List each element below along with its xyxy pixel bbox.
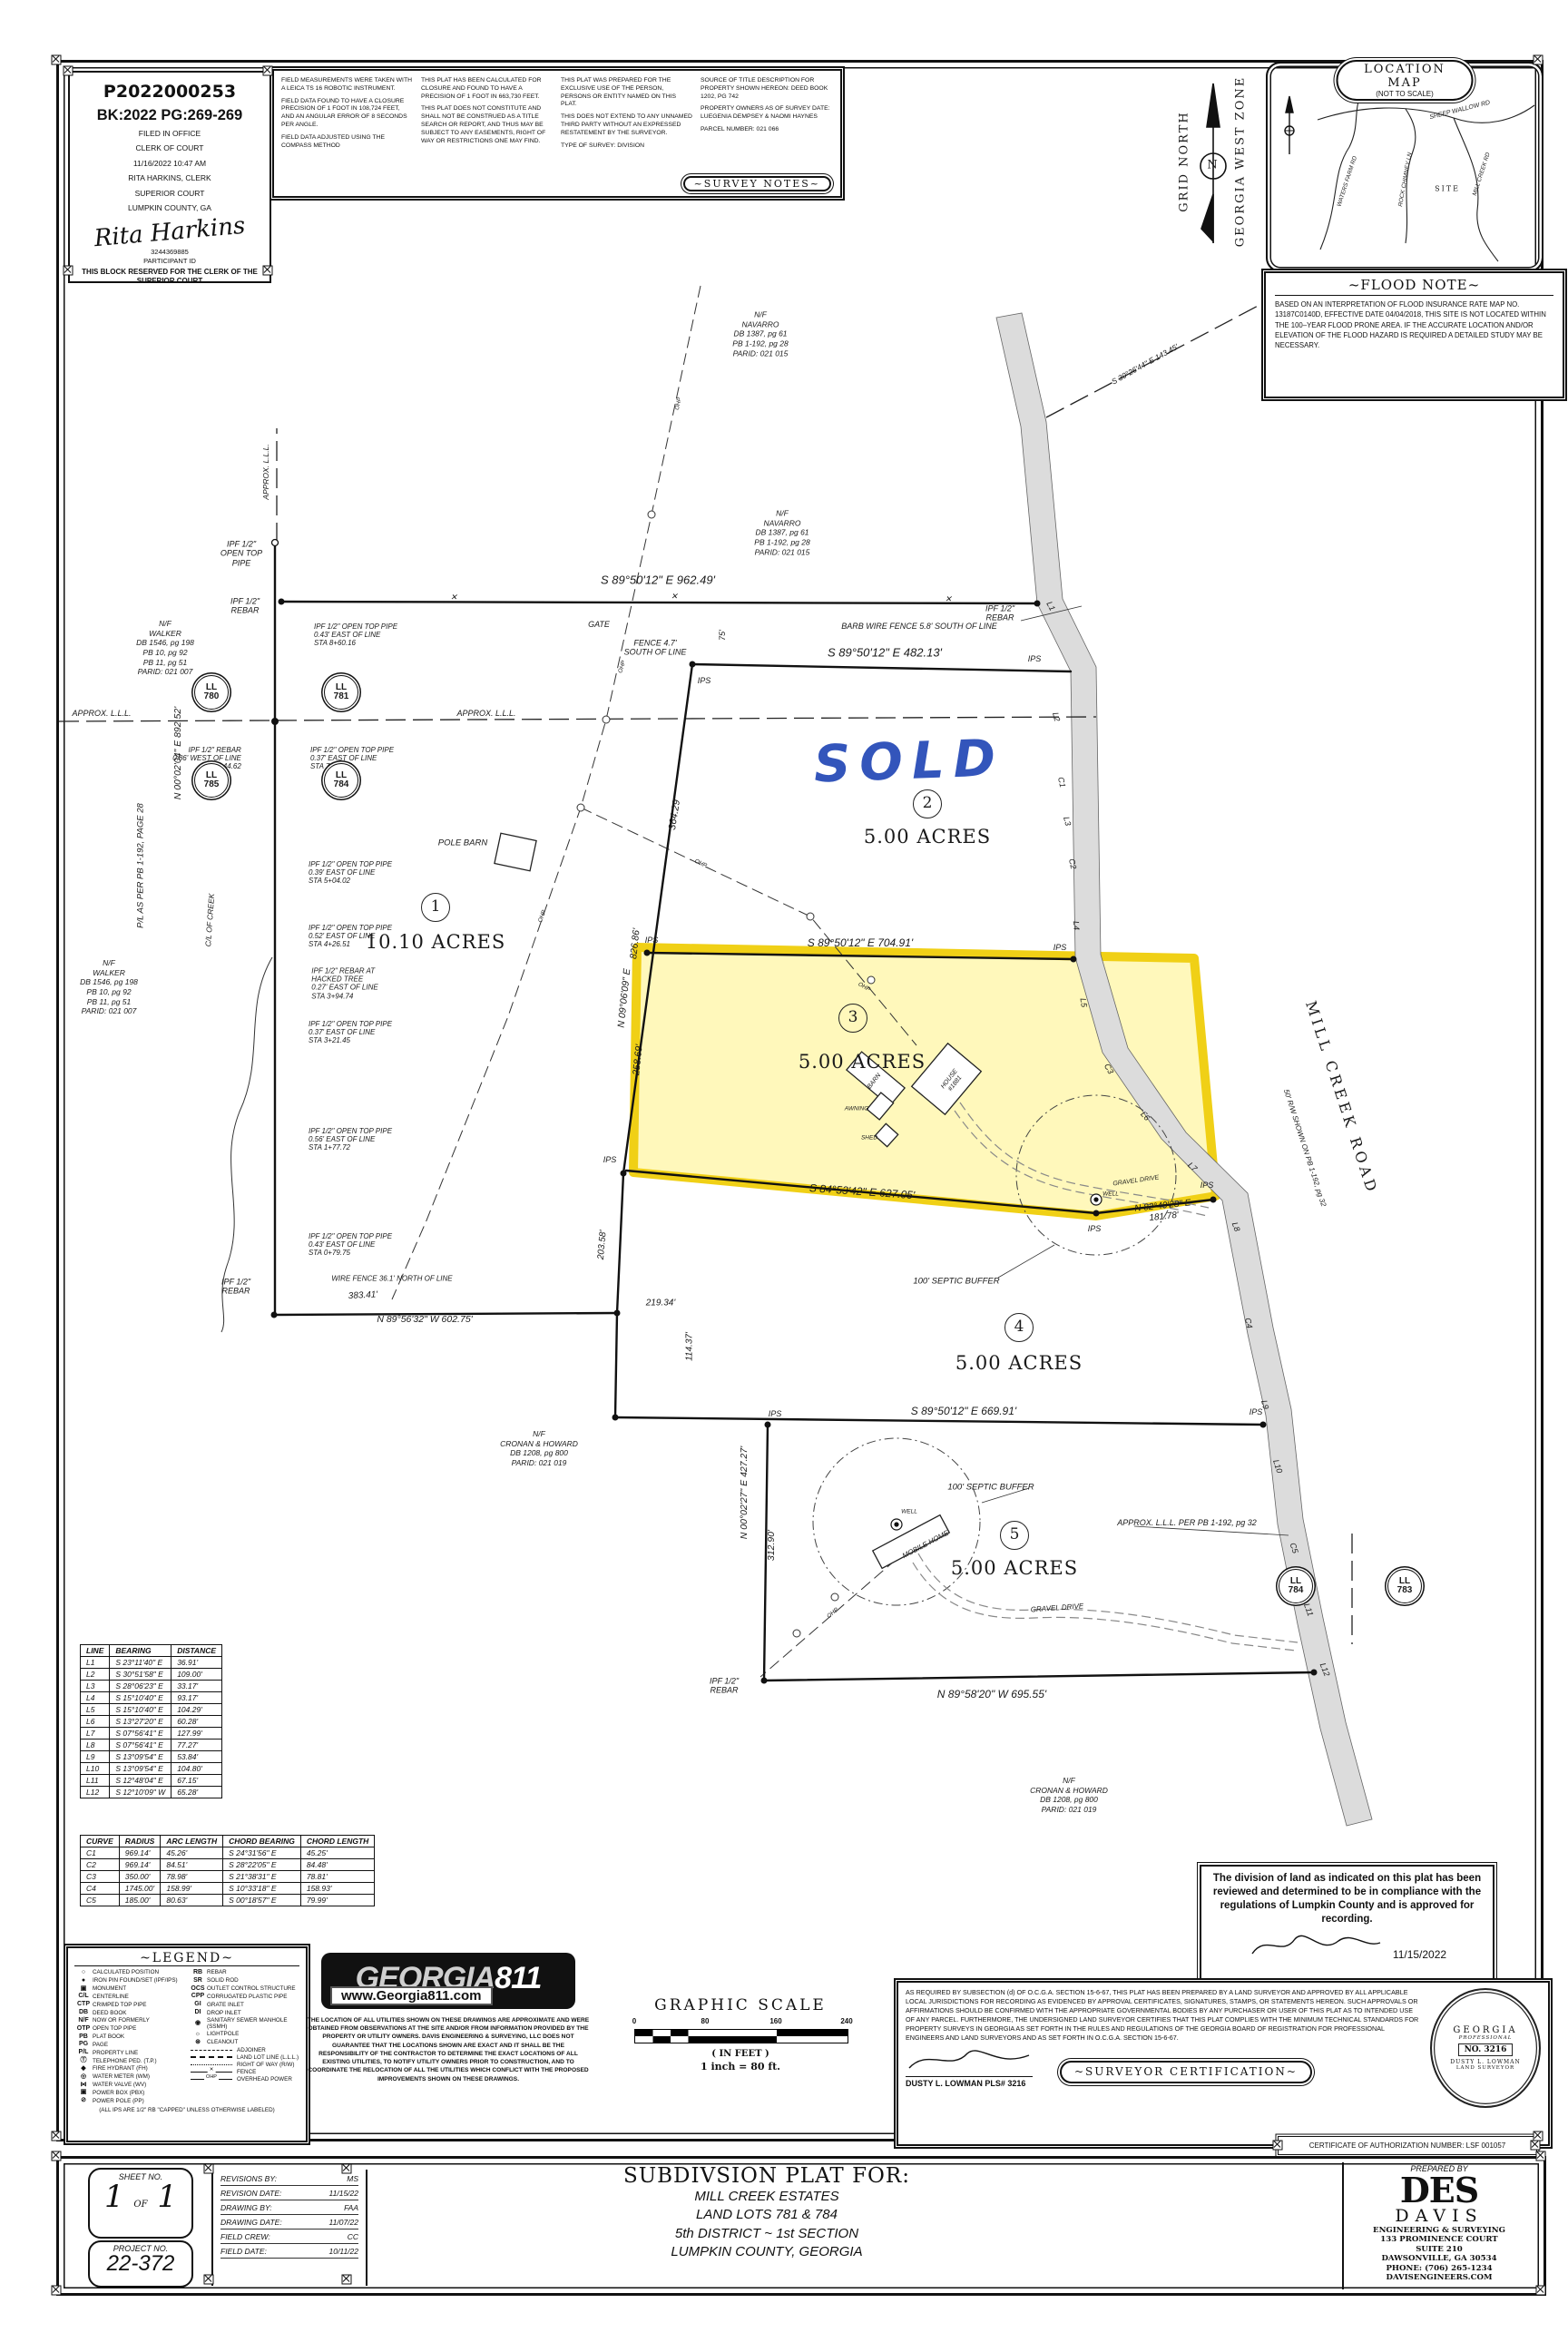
parcel-number: 4 (1004, 1313, 1034, 1342)
map-label: N/FCRONAN & HOWARDDB 1208, pg 800PARID: … (500, 1429, 578, 1468)
legend-right-column: RBREBARSRSOLID RODOCSOUTLET CONTROL STRU… (189, 1968, 299, 2105)
scale-units: ( IN FEET ) (599, 2049, 882, 2059)
map-label: IPS (1088, 1224, 1102, 1233)
project-number: 22-372 (90, 2253, 191, 2275)
georgia811-block: GEORGIA811 www.Georgia811.com THE LOCATI… (307, 1953, 590, 2131)
map-label: L2 (1051, 711, 1063, 722)
title-block: SHEET NO. 1 OF 1 PROJECT NO. 22-372 REVI… (56, 2156, 1546, 2296)
map-label: IPF 1/2"REBAR (710, 1677, 739, 1696)
map-label: N (1207, 160, 1219, 173)
surveyor-certification-title: ~SURVEYOR CERTIFICATION~ (1060, 2061, 1312, 2083)
sheet-number-box: SHEET NO. 1 OF 1 (88, 2168, 193, 2239)
map-label: N 82°40'28" E181.78' (1134, 1198, 1192, 1224)
parcel-number: 2 (913, 789, 942, 818)
map-label: IPF 1/2" OPEN TOP PIPE0.37' EAST OF LINE… (309, 1020, 392, 1045)
map-label: APPROX. L.L.L. (72, 709, 131, 718)
plat-title-heading: SUBDIVSION PLAT FOR: (449, 2164, 1084, 2188)
legend-item: DIDROP INLET (189, 2009, 299, 2016)
map-label: C/L OF CREEK (204, 893, 217, 946)
map-label: IPF 1/2" OPEN TOP PIPE0.43' EAST OF LINE… (314, 622, 397, 648)
map-label: N/FNAVARRODB 1387, pg 61PB 1-192, pg 28P… (754, 508, 809, 556)
map-label: IPS (1053, 943, 1067, 952)
map-label: 826.86' (628, 927, 642, 959)
map-label: WELL (1102, 1191, 1119, 1197)
firm-block: PREPARED BY DES DAVIS ENGINEERING & SURV… (1342, 2162, 1534, 2289)
revisions-table: REVISIONS BY:MSREVISION DATE:11/15/22DRA… (211, 2170, 367, 2286)
curve-table: CURVERADIUSARC LENGTHCHORD BEARINGCHORD … (80, 1835, 375, 1906)
map-label: S 89°50'12" E 704.91' (808, 937, 913, 950)
land-lot-marker: LL784 (324, 763, 358, 798)
legend-item: ◆FIRE HYDRANT (FH) (74, 2065, 185, 2073)
map-label: IPF 1/2"OPEN TOPPIPE (220, 539, 262, 567)
map-label: OHP (693, 858, 708, 870)
surveyor-signature (906, 2046, 1033, 2073)
map-label: BARB WIRE FENCE 5.8' SOUTH OF LINE (841, 622, 997, 631)
table-header: RADIUS (119, 1836, 161, 1847)
sheet-current: 1 (104, 2179, 124, 2215)
map-label: 312.90' (766, 1530, 777, 1561)
map-label: 258.69' (631, 1044, 645, 1075)
surveyor-certification-block: AS REQUIRED BY SUBSECTION (d) OF O.C.G.A… (894, 1978, 1553, 2149)
legend-item: SRSOLID ROD (189, 1977, 299, 1984)
map-label: L6 (1139, 1110, 1151, 1122)
map-label: GRID NORTH (1179, 111, 1192, 211)
map-label: GRAVEL DRIVE (1112, 1174, 1160, 1188)
survey-notes-title: ~SURVEY NOTES~ (683, 176, 831, 191)
table-row: L4S 15°10'40" E93.17' (81, 1692, 222, 1704)
map-label: L9 (1259, 1399, 1271, 1410)
participant-label: PARTICIPANT ID (70, 257, 269, 266)
survey-notes-col4: SOURCE OF TITLE DESCRIPTION FOR PROPERTY… (701, 77, 833, 190)
map-label: 50' R/W SHOWN ON PB 1-192, pg 32 (1282, 1088, 1328, 1208)
map-label: 75' (718, 630, 727, 641)
map-label: S 89°50'12" E 669.91' (911, 1406, 1016, 1418)
graphic-scale: GRAPHIC SCALE 080160240 ( IN FEET ) 1 in… (599, 1996, 882, 2105)
survey-notes-col2: THIS PLAT HAS BEEN CALCULATED FOR CLOSUR… (421, 77, 554, 190)
legend-item: PBPLAT BOOK (74, 2033, 185, 2041)
table-row: L12S 12°10'09" W65.28' (81, 1787, 222, 1798)
seal-number: NO. 3216 (1458, 2043, 1514, 2056)
map-label: SITE (1435, 184, 1460, 192)
table-header: LINE (81, 1645, 110, 1657)
map-label: ROCK CHIMNEY LN (1397, 152, 1414, 208)
approval-signature (1248, 1930, 1384, 1961)
map-label: L12 (1318, 1661, 1331, 1678)
county-approval-block: The division of land as indicated on thi… (1200, 1865, 1494, 1988)
legend-item: ☼LIGHTPOLE (189, 2031, 299, 2038)
approval-date: 11/15/2022 (1393, 1948, 1446, 1961)
map-label: MILL CREEK RD (1472, 152, 1492, 197)
map-label: OHP (617, 660, 627, 674)
plat-title-lines: MILL CREEK ESTATESLAND LOTS 781 & 7845th… (449, 2188, 1084, 2261)
map-label: WELL (901, 1508, 917, 1514)
parcel-number: 3 (838, 1004, 867, 1033)
table-header: ARC LENGTH (161, 1836, 223, 1847)
sheet-of: OF (133, 2200, 147, 2210)
map-label: ✕ (671, 592, 678, 601)
flood-note-title: ~FLOOD NOTE~ (1275, 277, 1553, 296)
map-label: N/FCRONAN & HOWARDDB 1208, pg 800PARID: … (1030, 1776, 1108, 1815)
table-row: C5185.00'80.63'S 00°18'57" E79.99' (81, 1895, 375, 1906)
map-label: FENCE 4.7'SOUTH OF LINE (624, 639, 687, 658)
utility-disclaimer: THE LOCATION OF ALL UTILITIES SHOWN ON T… (307, 2016, 590, 2083)
map-label: L8 (1230, 1221, 1241, 1233)
map-label: POLE BARN (438, 839, 487, 849)
map-label: C2 (1067, 857, 1079, 869)
table-row: C41745.00'158.99'S 10°33'18" E158.93' (81, 1883, 375, 1895)
firm-logo: DES (1344, 2173, 1534, 2208)
map-label: L5 (1078, 997, 1089, 1007)
surveyor-name: DUSTY L. LOWMAN PLS# 3216 (906, 2076, 1033, 2089)
georgia811-url: www.Georgia811.com (330, 1986, 493, 2005)
map-label: IPF 1/2" OPEN TOP PIPE0.52' EAST OF LINE… (309, 924, 392, 949)
seal-level: PROFESSIONAL (1459, 2035, 1513, 2041)
table-row: L5S 15°10'40" E104.29' (81, 1704, 222, 1716)
legend-item: ▣MONUMENT (74, 1985, 185, 1993)
legend-item: ○CALCULATED POSITION (74, 1969, 185, 1976)
certificate-of-authorization: CERTIFICATE OF AUTHORIZATION NUMBER: LSF… (1278, 2136, 1537, 2155)
legend-line-item: OHPOVERHEAD POWER (189, 2076, 299, 2082)
map-label: IPF 1/2"REBAR (230, 597, 260, 616)
legend-item: ⊛CLEANOUT (189, 2039, 299, 2046)
map-label: IPF 1/2"REBAR (985, 604, 1014, 623)
map-label: SHEEP WALLOW RD (1429, 100, 1491, 122)
table-row: C2969.14'84.51'S 28°22'05" E84.48' (81, 1859, 375, 1871)
map-label: N 00°02'27" E 427.27' (739, 1446, 750, 1539)
map-label: IPS (645, 936, 659, 945)
map-label: C4 (1243, 1317, 1255, 1328)
map-label: C3 (1102, 1062, 1116, 1075)
table-row: L7S 07°56'41" E127.99' (81, 1728, 222, 1739)
scale-tick: 0 (632, 2017, 636, 2025)
map-label: IPS (603, 1155, 617, 1164)
table-row: C1969.14'45.26'S 24°31'56" E45.25' (81, 1847, 375, 1859)
legend-item: CTPCRIMPED TOP PIPE (74, 2001, 185, 2008)
map-label: 100' SEPTIC BUFFER (947, 1484, 1034, 1494)
revision-row: REVISIONS BY:MS (220, 2171, 358, 2186)
map-label: L11 (1302, 1602, 1316, 1617)
plat-number: P2022000253 (70, 82, 269, 102)
revision-row: REVISION DATE:11/15/22 (220, 2186, 358, 2200)
map-label: L1 (1044, 600, 1057, 612)
legend-item: ⋈WATER VALVE (WV) (74, 2082, 185, 2089)
land-lot-marker: LL783 (1387, 1569, 1422, 1603)
map-label: L10 (1271, 1458, 1284, 1474)
map-label: IPS (769, 1409, 782, 1418)
georgia811-logo: GEORGIA811 www.Georgia811.com (321, 1953, 575, 2009)
legend-item: ⊘POWER POLE (PP) (74, 2097, 185, 2104)
map-label: WATERS FARM RD (1336, 155, 1358, 208)
table-row: L3S 28°06'23" E33.17' (81, 1681, 222, 1692)
seal-name: DUSTY L. LOWMAN (1450, 2059, 1520, 2065)
seal-title: LAND SURVEYOR (1456, 2065, 1514, 2071)
land-lot-marker: LL785 (194, 763, 229, 798)
legend-item: ⓉTELEPHONE PED. (T.P.) (74, 2057, 185, 2064)
map-label: 114.37' (684, 1332, 695, 1361)
project-number-box: PROJECT NO. 22-372 (88, 2240, 193, 2288)
map-label: 364.29' (667, 797, 683, 830)
map-label: 5.00 ACRES (955, 1352, 1083, 1374)
table-row: L8S 07°56'41" E77.27' (81, 1739, 222, 1751)
map-label: APPROX. L.L.L. (456, 709, 515, 718)
legend-item: P/LPROPERTY LINE (74, 2049, 185, 2056)
map-label: N/FNAVARRODB 1387, pg 61PB 1-192, pg 28P… (732, 309, 788, 358)
revision-row: FIELD CREW:CC (220, 2229, 358, 2244)
graphic-scale-title: GRAPHIC SCALE (599, 1996, 882, 2014)
legend-item: C/LCENTERLINE (74, 1993, 185, 2000)
legend-left-column: ○CALCULATED POSITION●IRON PIN FOUND/SET … (74, 1968, 185, 2105)
map-label: OHP (826, 1607, 840, 1621)
map-label: 5.00 ACRES (951, 1557, 1078, 1579)
table-row: L2S 30°51'58" E109.00' (81, 1669, 222, 1681)
legend-note: (ALL IPS ARE 1/2" RB "CAPPED" UNLESS OTH… (74, 2107, 299, 2113)
map-label: S 30°26'44" E 143.45' (1111, 343, 1181, 387)
flood-note: ~FLOOD NOTE~ BASED ON AN INTERPRETATION … (1261, 269, 1567, 401)
revision-row: DRAWING DATE:11/07/22 (220, 2215, 358, 2229)
table-header: CURVE (81, 1836, 120, 1847)
survey-notes-col3: THIS PLAT WAS PREPARED FOR THE EXCLUSIVE… (561, 77, 693, 190)
legend-line-item: LAND LOT LINE (L.L.L.) (189, 2054, 299, 2061)
legend-item: ▣POWER BOX (PBX) (74, 2089, 185, 2096)
scale-tick: 80 (701, 2017, 710, 2025)
map-label: WIRE FENCE 36.1' NORTH OF LINE (331, 1274, 452, 1282)
map-label: HOUSE#1881 (940, 1068, 965, 1095)
legend-line-item: ADJOINER (189, 2047, 299, 2053)
map-label: S 84°53'42" E 627.05' (808, 1182, 915, 1202)
legend-item: GIGRATE INLET (189, 2001, 299, 2008)
legend-line-item: RIGHT OF WAY (R/W) (189, 2062, 299, 2068)
location-map: LOCATION MAP (NOT TO SCALE) SHEEP WALLOW… (1266, 62, 1543, 272)
map-label: AWNING (845, 1105, 869, 1112)
map-label: N 89°56'32" W 602.75' (377, 1314, 472, 1325)
map-label: N 89°58'20" W 695.55' (937, 1689, 1046, 1701)
parcel-number: 5 (1000, 1521, 1029, 1550)
reserved-note: THIS BLOCK RESERVED FOR THE CLERK OF THE… (70, 268, 269, 286)
map-label: N/FWALKERDB 1546, pg 198PB 10, pg 92PB 1… (136, 619, 194, 677)
map-label: APPROX. L.L.L. PER PB 1-192, pg 32 (1117, 1518, 1257, 1527)
scale-tick: 160 (769, 2017, 781, 2025)
revision-row: FIELD DATE:10/11/22 (220, 2244, 358, 2259)
seal-state: GEORGIA (1453, 2025, 1517, 2035)
filed-lines: FILED IN OFFICECLERK OF COURT11/16/2022 … (70, 129, 269, 214)
plat-title: SUBDIVSION PLAT FOR: MILL CREEK ESTATESL… (449, 2164, 1084, 2261)
legend-item: ◎WATER METER (WM) (74, 2073, 185, 2081)
map-label: 5.00 ACRES (864, 826, 991, 848)
map-label: GEORGIA WEST ZONE (1235, 76, 1249, 247)
surveyor-seal: GEORGIA PROFESSIONAL NO. 3216 DUSTY L. L… (1430, 1988, 1541, 2108)
map-label: IPF 1/2" OPEN TOP PIPE0.56' EAST OF LINE… (309, 1127, 392, 1152)
map-label: IPS (1028, 654, 1042, 663)
map-label: APPROX. L.L.L. (262, 444, 271, 499)
map-label: L4 (1071, 921, 1081, 931)
firm-address-lines: ENGINEERING & SURVEYING133 PROMINENCE CO… (1344, 2226, 1534, 2283)
legend-item: CPPCORRUGATED PLASTIC PIPE (189, 1993, 299, 2000)
map-label: IPF 1/2"REBAR (221, 1278, 250, 1297)
land-lot-marker: LL784 (1279, 1569, 1313, 1603)
map-label: C1 (1056, 776, 1068, 788)
table-row: L10S 13°09'54" E104.80' (81, 1763, 222, 1775)
table-header: CHORD BEARING (223, 1836, 301, 1847)
map-label: S 89°50'12" E 962.49' (601, 574, 715, 588)
scale-bar (634, 2029, 848, 2043)
map-label: N/FWALKERDB 1546, pg 198PB 10, pg 92PB 1… (80, 958, 138, 1016)
scale-ratio: 1 inch = 80 ft. (599, 2061, 882, 2073)
legend-title: ~LEGEND~ (74, 1951, 299, 1966)
table-row: L1S 23°11'40" E36.91' (81, 1657, 222, 1669)
legend-item: PGPAGE (74, 2041, 185, 2048)
land-lot-marker: LL781 (324, 675, 358, 710)
scale-tick: 240 (840, 2017, 852, 2025)
map-label: 5.00 ACRES (799, 1051, 926, 1073)
legend-block: ~LEGEND~ ○CALCULATED POSITION●IRON PIN F… (64, 1944, 310, 2145)
survey-notes-block: FIELD MEASUREMENTS WERE TAKEN WITH A LEI… (269, 66, 845, 201)
map-label: GATE (588, 620, 610, 629)
map-label: L7 (1186, 1161, 1199, 1173)
plat-page: S 89°50'12" E 962.49'S 89°50'12" E 482.1… (0, 0, 1568, 2352)
map-label: IPF 1/2" OPEN TOP PIPE0.39' EAST OF LINE… (309, 860, 392, 886)
georgia811-number: 811 (495, 1961, 541, 1995)
map-label: L3 (1062, 816, 1073, 827)
line-table: LINEBEARINGDISTANCEL1S 23°11'40" E36.91'… (80, 1644, 222, 1798)
flood-note-text: BASED ON AN INTERPRETATION OF FLOOD INSU… (1275, 299, 1553, 350)
location-map-labels: SHEEP WALLOW RDWATERS FARM RDROCK CHIMNE… (1268, 64, 1542, 270)
table-header: CHORD LENGTH (300, 1836, 374, 1847)
map-label: OHP (537, 909, 548, 924)
land-lot-marker: LL780 (194, 675, 229, 710)
map-label: IPS (1200, 1181, 1214, 1190)
table-header: BEARING (110, 1645, 171, 1657)
survey-notes-col1: FIELD MEASUREMENTS WERE TAKEN WITH A LEI… (281, 77, 414, 190)
parcel-number: 1 (421, 893, 450, 922)
map-label: OHP (674, 397, 683, 410)
map-label: IPF 1/2" REBAR ATHACKED TREE0.27' EAST O… (311, 967, 377, 1001)
map-label: 383.41' (348, 1289, 377, 1301)
clerk-recording-block: P2022000253 BK:2022 PG:269-269 FILED IN … (68, 71, 271, 283)
map-label: 100' SEPTIC BUFFER (913, 1278, 999, 1288)
certification-text: AS REQUIRED BY SUBSECTION (d) OF O.C.G.A… (906, 1988, 1418, 2042)
book-page: BK:2022 PG:269-269 (70, 107, 269, 124)
map-label: BARN (867, 1073, 883, 1091)
legend-item: ●IRON PIN FOUND/SET (IPF/IPS) (74, 1977, 185, 1984)
legend-item: N/FNOW OR FORMERLY (74, 2017, 185, 2024)
legend-item: DBDEED BOOK (74, 2009, 185, 2016)
map-label: SOLD (813, 730, 1005, 795)
map-label: 203.58' (596, 1230, 609, 1259)
map-label: MOBILE HOME (901, 1529, 950, 1561)
revision-row: DRAWING BY:FAA (220, 2200, 358, 2215)
map-label: ✕ (945, 594, 952, 603)
legend-item: ◉SANITARY SEWER MANHOLE (SSMH) (189, 2017, 299, 2030)
map-label: N 09°06'09" E (616, 968, 633, 1028)
map-label: IPF 1/2" OPEN TOP PIPE0.43' EAST OF LINE… (309, 1232, 392, 1258)
table-row: L6S 13°27'20" E60.28' (81, 1716, 222, 1728)
table-row: C3350.00'78.98'S 21°38'31" E78.81' (81, 1871, 375, 1883)
table-header: DISTANCE (171, 1645, 222, 1657)
map-label: C5 (1288, 1542, 1299, 1554)
legend-item: OTPOPEN TOP PIPE (74, 2025, 185, 2033)
sheet-total: 1 (157, 2179, 177, 2215)
legend-item: RBREBAR (189, 1969, 299, 1976)
table-row: L9S 13°09'54" E53.84' (81, 1751, 222, 1763)
map-label: S 89°50'12" E 482.13' (828, 647, 942, 661)
map-label: SHED (861, 1134, 877, 1141)
map-label: ✕ (450, 593, 457, 602)
map-label: 219.34' (646, 1298, 676, 1308)
table-row: L11S 12°48'04" E67.15' (81, 1775, 222, 1787)
legend-item: OCSOUTLET CONTROL STRUCTURE (189, 1985, 299, 1993)
map-label: OHP (857, 981, 871, 994)
firm-name: DAVIS (1344, 2208, 1534, 2226)
map-label: P/L AS PER PB 1-192, PAGE 28 (137, 803, 147, 928)
map-label: GRAVEL DRIVE (1030, 1602, 1083, 1613)
approval-text: The division of land as indicated on thi… (1209, 1872, 1485, 1926)
map-label: IPS (698, 676, 711, 685)
